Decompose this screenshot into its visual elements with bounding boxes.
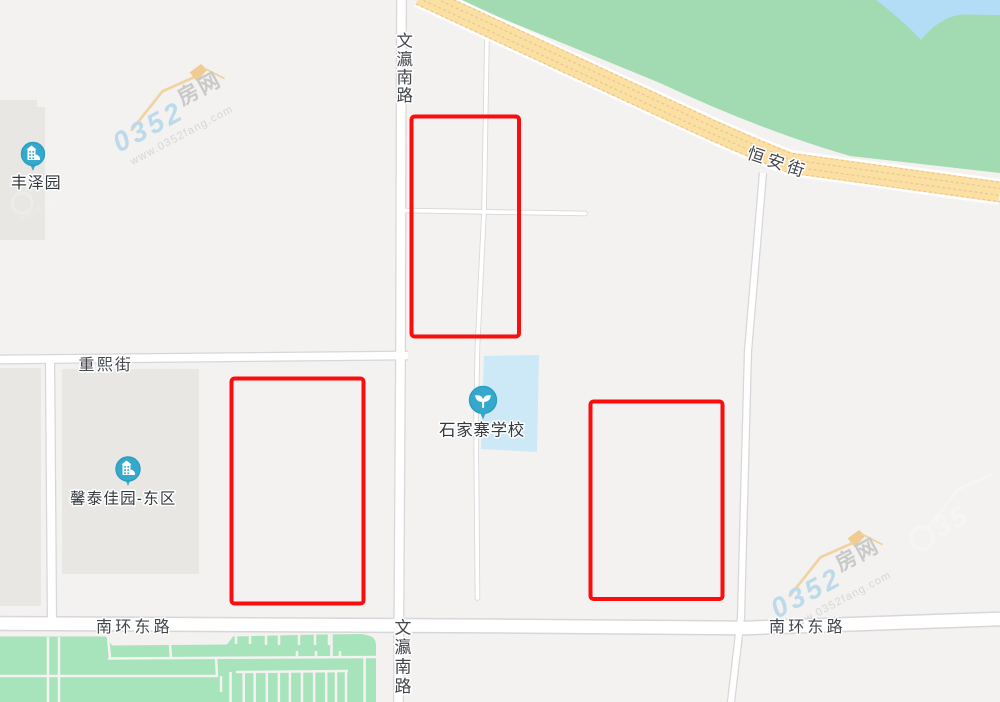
svg-text:路: 路 [395, 677, 412, 696]
svg-text:瀛: 瀛 [397, 49, 414, 69]
svg-text:重熙街: 重熙街 [79, 356, 134, 374]
svg-text:南环东路: 南环东路 [769, 618, 846, 636]
svg-text:南: 南 [397, 68, 414, 87]
svg-text:文: 文 [395, 619, 412, 638]
svg-text:南: 南 [395, 658, 412, 677]
svg-text:路: 路 [397, 86, 414, 105]
svg-text:馨泰佳园-东区: 馨泰佳园-东区 [70, 490, 177, 508]
svg-text:南环东路: 南环东路 [96, 618, 173, 636]
svg-text:文: 文 [397, 32, 414, 51]
svg-text:瀛: 瀛 [395, 637, 412, 657]
svg-text:石家寨学校: 石家寨学校 [439, 421, 525, 440]
svg-text:丰泽园: 丰泽园 [11, 174, 61, 192]
